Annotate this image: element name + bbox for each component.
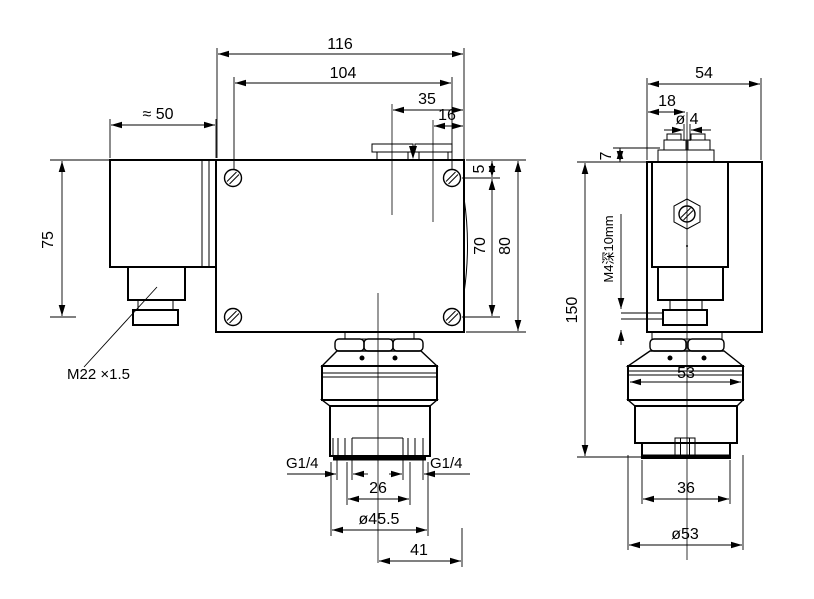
dim-53-flats: 53 [630, 365, 741, 382]
dim-75-label: 75 [40, 231, 57, 249]
dim-16-label: 16 [438, 107, 456, 124]
dim-5-70-80: 5 70 80 [462, 160, 526, 332]
side-view-body [647, 134, 762, 332]
side-view: 54 18 ø 4 7 [564, 65, 762, 560]
side-view-dimensions: 54 18 ø 4 7 [564, 65, 761, 550]
screw-bottom-right-icon [444, 309, 461, 326]
g14-right-label: G1/4 [430, 455, 463, 472]
terminal-blocks [372, 144, 452, 160]
electrical-housing [110, 160, 216, 325]
screw-top-left-icon [225, 170, 242, 187]
dim-53-dia-label: ø53 [671, 526, 699, 543]
dim-5-label: 5 [471, 164, 488, 173]
pressure-switch-drawing: 116 104 35 16 [0, 0, 814, 599]
g14-left-label: G1/4 [286, 455, 319, 472]
dim-75: 75 [40, 160, 110, 317]
terminal-blocks-side [658, 134, 714, 162]
dim-7: 7 [598, 148, 660, 162]
dim-53-flats-label: 53 [677, 365, 695, 382]
front-view: 116 104 35 16 [40, 36, 526, 567]
dim-16: 16 [433, 107, 463, 222]
dim-70-label: 70 [472, 237, 489, 255]
dim-150-label: 150 [564, 297, 581, 324]
dim-4: ø 4 [664, 111, 711, 141]
dim-53-dia: ø53 [628, 455, 743, 550]
dim-35-label: 35 [418, 91, 436, 108]
dim-18: 18 [648, 93, 685, 112]
dim-26: 26 [347, 462, 410, 505]
dim-50-label: ≈ 50 [142, 106, 173, 123]
dim-54-label: 54 [695, 65, 713, 82]
dim-26-label: 26 [369, 480, 387, 497]
m22-label: M22 ×1.5 [67, 366, 130, 383]
note-m4-label: M4深10mm [601, 215, 616, 282]
engineering-drawing: 116 104 35 16 [0, 0, 814, 599]
dim-7-label: 7 [598, 151, 615, 160]
dim-4-label: ø 4 [675, 111, 698, 128]
dim-36: 36 [642, 460, 730, 504]
front-view-dimensions: 116 104 35 16 [40, 36, 526, 567]
screw-bottom-left-icon [225, 309, 242, 326]
dim-41-label: 41 [410, 542, 428, 559]
dim-104-label: 104 [330, 65, 357, 82]
dim-116-label: 116 [327, 36, 353, 53]
label-m22: M22 ×1.5 [67, 287, 157, 383]
dim-50: ≈ 50 [110, 106, 216, 158]
dim-18-label: 18 [658, 93, 676, 110]
dim-45-5-label: ø45.5 [359, 511, 400, 528]
dim-36-label: 36 [677, 480, 695, 497]
front-view-body [216, 160, 468, 332]
screw-top-right-icon [444, 170, 461, 187]
dim-80-label: 80 [497, 237, 514, 255]
dim-41: 41 [379, 528, 462, 567]
